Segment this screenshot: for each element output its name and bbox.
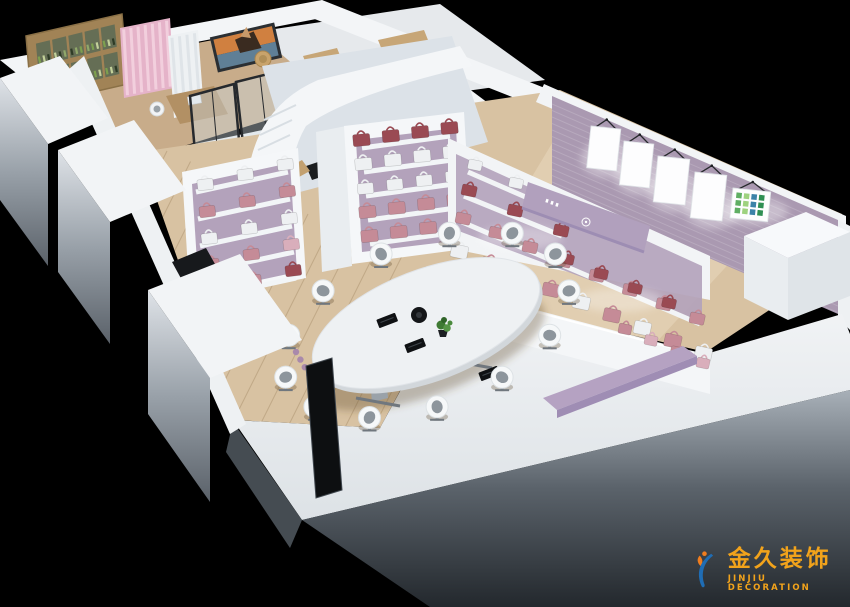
handbag-body bbox=[237, 168, 254, 181]
chair bbox=[275, 366, 297, 391]
chair bbox=[544, 243, 566, 268]
poster-canvas bbox=[653, 156, 690, 205]
render-canvas: 金久装饰 JINJIU DECORATION bbox=[0, 0, 850, 607]
handbag-body bbox=[390, 225, 408, 238]
curtain bbox=[120, 18, 174, 98]
handbag-body bbox=[239, 195, 256, 208]
poster-grid-swatch bbox=[734, 208, 740, 214]
poster-grid-swatch bbox=[735, 200, 741, 206]
chair bbox=[438, 222, 460, 247]
logo-flame-dot bbox=[702, 551, 707, 556]
brand-name-chinese: 金久装饰 bbox=[728, 548, 850, 571]
handbag-body bbox=[360, 229, 378, 242]
handbag-body bbox=[416, 174, 433, 186]
chair bbox=[370, 243, 392, 268]
bookcase-pane bbox=[101, 24, 117, 50]
poster-grid-swatch bbox=[751, 194, 757, 200]
poster-grid-swatch bbox=[743, 201, 749, 207]
brand-name-english: JINJIU DECORATION bbox=[728, 575, 850, 592]
handbag-body bbox=[241, 222, 258, 235]
chair bbox=[491, 366, 513, 391]
handbag-body bbox=[285, 264, 302, 277]
handbag-body bbox=[419, 221, 437, 234]
chair bbox=[312, 280, 334, 305]
lounge-chair-seat bbox=[259, 55, 267, 63]
handbag-body bbox=[417, 197, 435, 210]
bookcase-pane bbox=[68, 32, 84, 58]
handbag-body bbox=[283, 238, 300, 251]
accessory-item bbox=[293, 349, 299, 355]
handbag-body bbox=[197, 178, 214, 191]
bookcase-pane bbox=[103, 52, 119, 78]
handbag-body bbox=[386, 178, 403, 190]
chair bbox=[558, 280, 580, 305]
sign-logo-dot bbox=[585, 221, 587, 223]
handbag-body bbox=[354, 157, 372, 170]
chair bbox=[359, 407, 381, 432]
chair bbox=[426, 396, 448, 421]
poster-grid-swatch bbox=[736, 192, 742, 198]
poster-grid-swatch bbox=[750, 209, 756, 215]
interior-render bbox=[0, 0, 850, 607]
bookcase-pane bbox=[85, 28, 101, 54]
office-chair-seat bbox=[154, 106, 161, 113]
handbag-body bbox=[357, 182, 374, 194]
handbag-body bbox=[243, 248, 260, 261]
handbag-body bbox=[201, 232, 218, 245]
handbag-body bbox=[384, 153, 402, 166]
accessory-item bbox=[297, 356, 303, 362]
poster-grid-swatch bbox=[757, 210, 763, 216]
handbag-body bbox=[440, 121, 458, 134]
poster-grid-swatch bbox=[744, 193, 750, 199]
handbag-body bbox=[411, 125, 429, 138]
handbag-body bbox=[413, 149, 431, 162]
chair bbox=[501, 222, 523, 247]
jinjiu-logo: 金久装饰 JINJIU DECORATION bbox=[692, 548, 850, 592]
poster-canvas bbox=[587, 126, 621, 171]
handbag-body bbox=[388, 201, 406, 214]
jinjiu-logo-icon bbox=[692, 549, 721, 591]
handbag-body bbox=[281, 212, 298, 225]
poster-grid-swatch bbox=[742, 208, 748, 214]
handbag-body bbox=[358, 205, 376, 218]
chair bbox=[539, 324, 561, 349]
poster-grid-swatch bbox=[759, 195, 765, 201]
handbag-body bbox=[199, 205, 216, 218]
handbag-body bbox=[382, 129, 400, 142]
handbag-body bbox=[277, 158, 294, 171]
speakerphone-center bbox=[416, 312, 422, 318]
poster-grid-swatch bbox=[758, 202, 764, 208]
poster-grid-swatch bbox=[750, 202, 756, 208]
handbag-body bbox=[352, 133, 370, 146]
poster-canvas bbox=[619, 141, 653, 188]
handbag-body bbox=[279, 185, 296, 198]
